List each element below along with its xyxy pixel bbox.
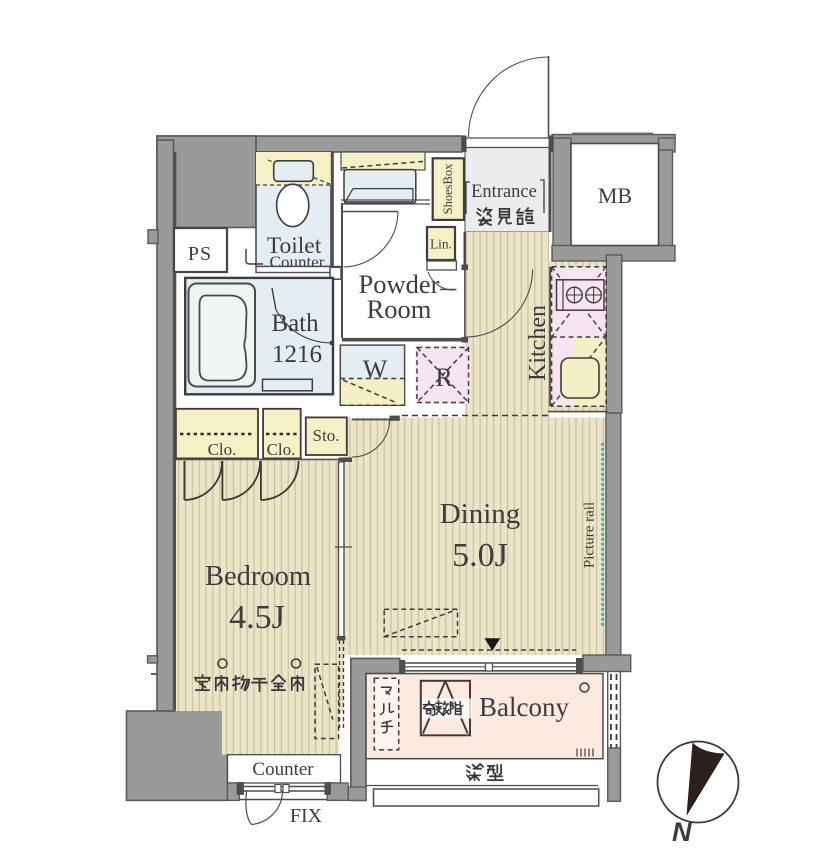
svg-text:N: N (672, 817, 692, 847)
svg-text:Lin.: Lin. (430, 237, 452, 252)
svg-text:Balcony: Balcony (479, 692, 569, 722)
svg-text:1216: 1216 (272, 341, 322, 368)
svg-text:Sto.: Sto. (313, 426, 340, 445)
svg-text:FIX: FIX (290, 805, 323, 827)
svg-text:Dining: Dining (440, 498, 521, 530)
svg-text:Entrance: Entrance (471, 182, 537, 202)
svg-text:ShoesBox: ShoesBox (441, 163, 455, 214)
svg-text:5.0J: 5.0J (452, 537, 508, 574)
svg-text:4.5J: 4.5J (229, 599, 285, 636)
svg-text:MB: MB (598, 183, 632, 208)
svg-text:Counter: Counter (252, 759, 314, 780)
svg-text:PS: PS (188, 243, 212, 265)
svg-text:Kitchen: Kitchen (525, 305, 551, 381)
svg-text:Clo.: Clo. (208, 440, 237, 459)
svg-text:R: R (435, 363, 453, 392)
svg-text:Room: Room (367, 294, 432, 324)
svg-text:Clo.: Clo. (267, 440, 296, 459)
svg-text:Picture rail: Picture rail (582, 502, 598, 568)
svg-text:W: W (363, 355, 388, 384)
svg-text:Bedroom: Bedroom (205, 561, 311, 592)
